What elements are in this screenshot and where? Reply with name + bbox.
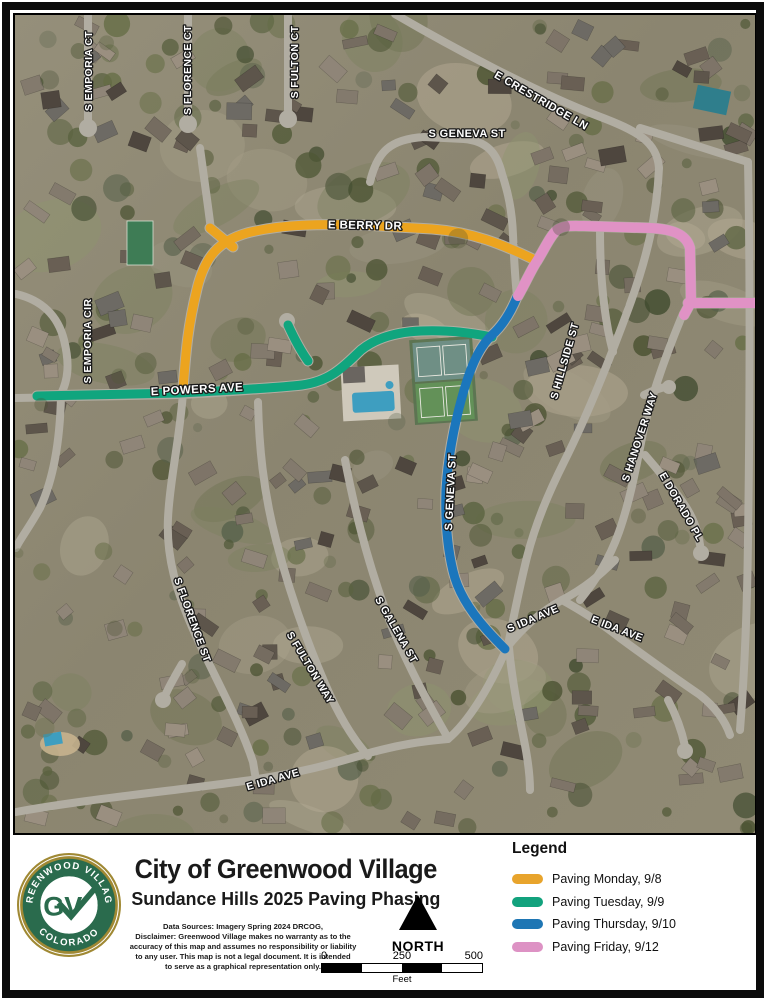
legend-item-label: Paving Thursday, 9/10 xyxy=(543,917,676,931)
disclaimer-line: Disclaimer: Greenwood Village makes no w… xyxy=(118,932,368,942)
street-label: S FULTON CT xyxy=(289,25,301,98)
street-label: S EMPORIA CIR xyxy=(82,299,94,384)
street-label: S EMPORIA CT xyxy=(83,31,95,111)
street-label: S GENEVA ST xyxy=(428,128,505,140)
legend-item-friday: Paving Friday, 9/12 xyxy=(512,936,676,959)
title-block: GREENWOOD VILLAGE COLORADO GV City of Gr… xyxy=(13,836,757,982)
thursday-color-swatch xyxy=(512,919,543,929)
scale-tick: 500 xyxy=(465,950,483,962)
legend-item-label: Paving Monday, 9/8 xyxy=(543,872,662,886)
scale-bar-segments xyxy=(321,963,483,973)
tuesday-color-swatch xyxy=(512,897,543,907)
tennis-court-west xyxy=(127,221,153,265)
scale-tick: 250 xyxy=(393,950,411,962)
north-arrow-icon xyxy=(396,894,440,932)
legend-item-label: Paving Tuesday, 9/9 xyxy=(543,895,664,909)
legend: Legend Paving Monday, 9/8 Paving Tuesday… xyxy=(512,840,676,958)
scale-unit: Feet xyxy=(321,974,483,985)
monday-color-swatch xyxy=(512,874,543,884)
scale-tick: 0 xyxy=(321,950,327,962)
legend-item-tuesday: Paving Tuesday, 9/9 xyxy=(512,891,676,914)
greenwood-village-logo: GREENWOOD VILLAGE COLORADO GV xyxy=(17,853,121,957)
street-label: E BERRY DR xyxy=(328,219,403,232)
disclaimer-line: Data Sources: Imagery Spring 2024 DRCOG, xyxy=(118,922,368,932)
swimming-pool xyxy=(341,364,402,421)
scale-bar: 0 250 500 Feet xyxy=(321,950,483,985)
street-label: S FLORENCE CT xyxy=(182,25,194,115)
paving-map-page: { "title_block": { "title": "City of Gre… xyxy=(0,0,766,1000)
map-title: City of Greenwood Village xyxy=(135,854,436,885)
legend-item-label: Paving Friday, 9/12 xyxy=(543,940,659,954)
friday-color-swatch xyxy=(512,942,543,952)
legend-heading: Legend xyxy=(512,840,676,858)
north-arrow: NORTH xyxy=(379,894,457,954)
legend-item-monday: Paving Monday, 9/8 xyxy=(512,868,676,891)
aerial-map: S EMPORIA CTS FLORENCE CTS FULTON CTS GE… xyxy=(15,15,755,833)
legend-item-thursday: Paving Thursday, 9/10 xyxy=(512,913,676,936)
map-canvas: S EMPORIA CTS FLORENCE CTS FULTON CTS GE… xyxy=(13,13,757,835)
